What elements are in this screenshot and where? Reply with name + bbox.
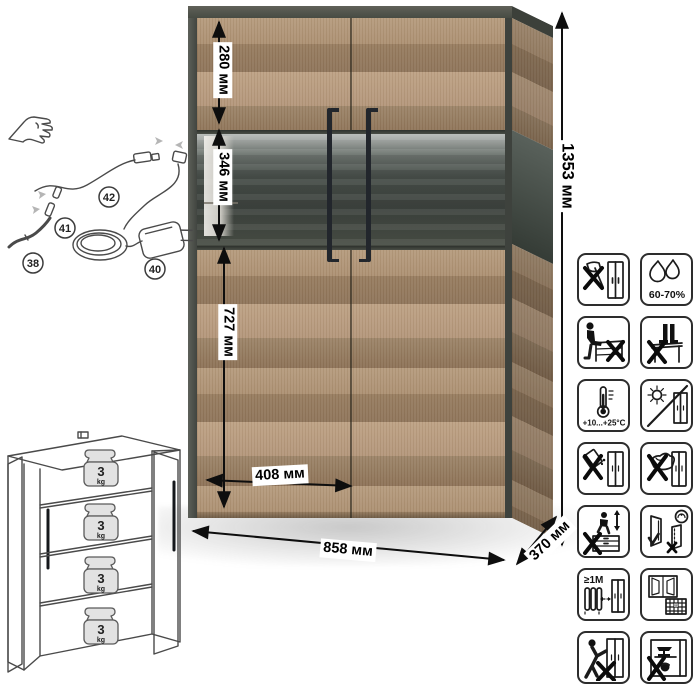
callout-38: 38 [23, 253, 43, 273]
svg-text:kg: kg [97, 479, 105, 486]
shelf-weight-4: 3 kg [84, 608, 118, 644]
cabinet-front [188, 18, 512, 518]
upper-door-seam [350, 18, 352, 130]
led-cable-42 [35, 137, 183, 191]
svg-text:kg: kg [97, 533, 105, 540]
care-icon-no-heavy-objects [640, 631, 693, 684]
calendar-day-label: 21 [674, 603, 678, 607]
cabinet-photo [188, 4, 566, 570]
dim-label-total-height: 1353 мм [557, 140, 578, 212]
svg-text:40: 40 [149, 264, 161, 276]
care-icon-temperature: +10...+25°C [577, 379, 630, 432]
humidity-label: 60-70% [648, 289, 685, 301]
side-lower-wood [512, 244, 553, 538]
svg-text:3: 3 [97, 571, 104, 586]
care-icon-no-sunlight [640, 379, 693, 432]
led-kit-diagram: 42 41 38 40 [5, 103, 200, 281]
svg-text:38: 38 [27, 258, 39, 270]
no-spilling-icon [581, 446, 627, 492]
no-climbing-icon [581, 509, 627, 555]
furniture-spec-diagram: 280 мм 346 мм 727 мм 408 мм 858 мм 370 м… [0, 0, 700, 678]
temperature-icon: +10...+25°C [581, 383, 627, 429]
care-icon-no-standing [640, 316, 693, 369]
no-standing-icon [644, 320, 690, 366]
dim-label-top-section: 280 мм [214, 42, 233, 98]
no-abrasive-cleaning-icon [644, 446, 690, 492]
callout-42: 42 [99, 187, 119, 207]
callout-41: 41 [55, 218, 75, 238]
display-glass-section [188, 134, 512, 246]
svg-text:3: 3 [97, 518, 104, 533]
shelf-weight-1: 3 kg [84, 450, 118, 486]
door-handle-left [327, 108, 332, 262]
radiator-distance-icon: ≥1M [581, 572, 627, 618]
side-upper-wood [512, 18, 553, 150]
open-door-right [154, 452, 178, 654]
svg-text:42: 42 [103, 192, 115, 204]
power-plug-cord [73, 151, 187, 260]
side-glass [512, 130, 553, 264]
radiator-distance-label: ≥1M [584, 575, 603, 586]
hand-icon [9, 117, 52, 143]
humidity-icon: 60-70% [644, 257, 690, 303]
no-dragging-icon [581, 635, 627, 681]
dim-label-bottom-section: 727 мм [219, 304, 238, 360]
care-icon-no-sharp-tools [577, 253, 630, 306]
shelf-weight-2: 3 kg [84, 504, 118, 540]
svg-text:3: 3 [97, 622, 104, 637]
svg-text:3: 3 [97, 464, 104, 479]
open-door-left [8, 457, 48, 672]
cabinet-side-panel [512, 6, 553, 538]
svg-text:kg: kg [97, 637, 105, 644]
cabinet-top-cap [188, 6, 512, 18]
care-icon-ventilate-room: 21 [640, 568, 693, 621]
door-handle-right [366, 108, 371, 262]
care-icon-no-climbing [577, 505, 630, 558]
care-icon-close-doors-gently [640, 505, 693, 558]
dim-label-display-section: 346 мм [214, 149, 233, 205]
no-sunlight-icon [644, 383, 690, 429]
care-icon-humidity: 60-70% [640, 253, 693, 306]
svg-text:kg: kg [97, 586, 105, 593]
shelf-weight-3: 3 kg [84, 557, 118, 593]
ventilate-room-icon: 21 [644, 572, 690, 618]
care-icon-no-dragging [577, 631, 630, 684]
no-sharp-tools-icon [581, 257, 627, 303]
care-icon-no-sitting [577, 316, 630, 369]
dim-label-door-width: 408 мм [252, 464, 309, 485]
care-icon-no-spilling [577, 442, 630, 495]
no-sitting-icon [581, 320, 627, 366]
led-strip-38 [9, 218, 50, 247]
care-icon-no-abrasive-cleaning [640, 442, 693, 495]
no-heavy-objects-icon [644, 635, 690, 681]
lower-door-seam [350, 250, 352, 518]
callout-40: 40 [145, 259, 165, 279]
power-adapter-40 [138, 218, 197, 260]
shelf-load-schematic: 3 kg 3 kg 3 kg 3 kg [2, 424, 198, 678]
svg-text:41: 41 [59, 223, 71, 235]
temperature-label: +10...+25°C [582, 418, 625, 427]
care-icon-radiator-distance: ≥1M [577, 568, 630, 621]
close-doors-gently-icon [644, 509, 690, 555]
cabinet-right-edge [505, 18, 512, 518]
